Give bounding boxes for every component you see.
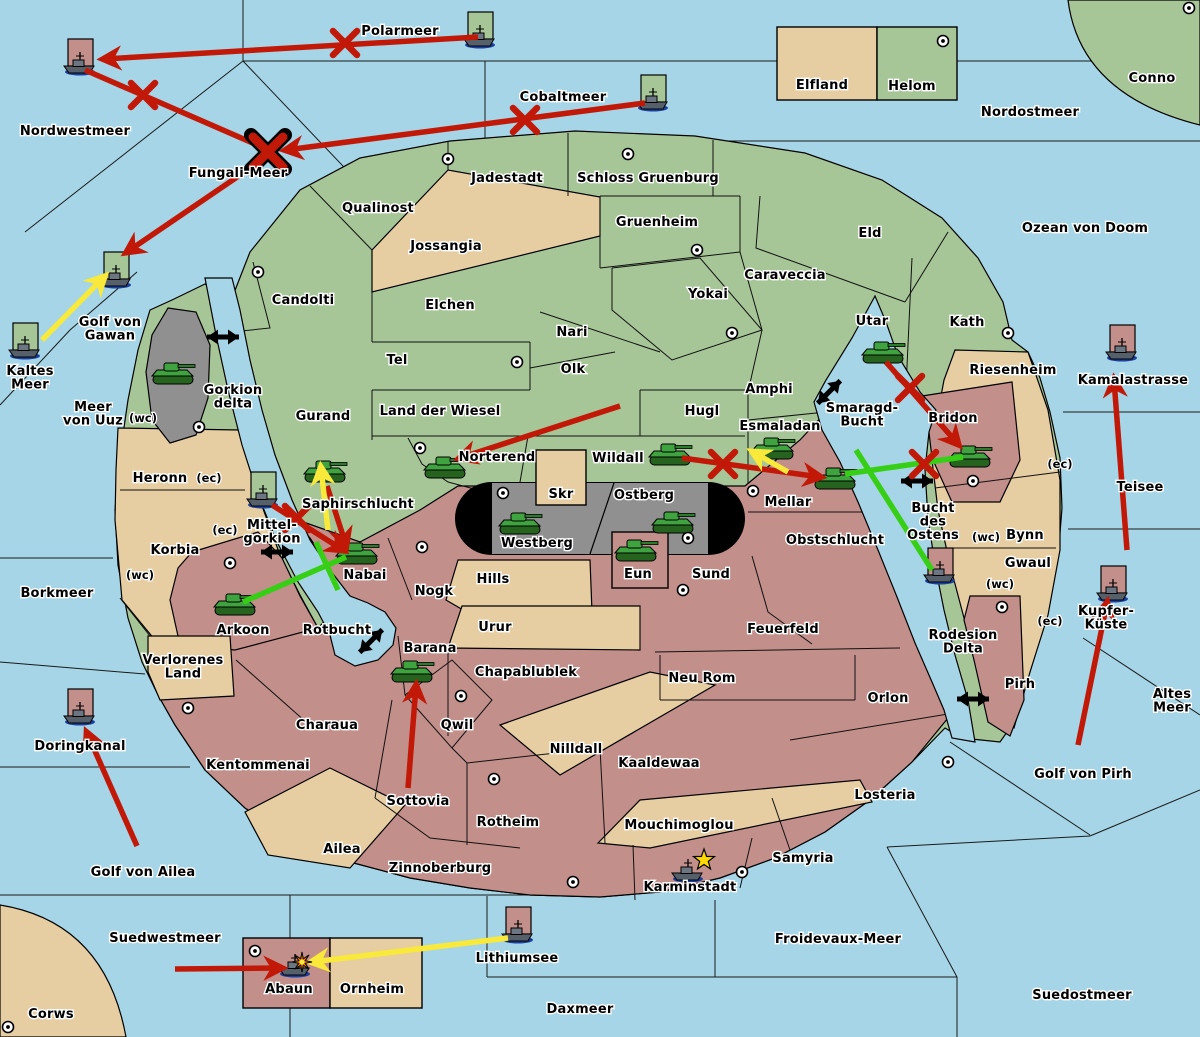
city-marker xyxy=(489,774,500,785)
sea-label-mittelgorkion: Mittel-gorkion xyxy=(243,518,300,547)
city-marker xyxy=(3,1022,14,1033)
ship-unit[interactable] xyxy=(464,12,495,49)
city-marker xyxy=(1184,3,1195,14)
territory-label-samyria: Samyria xyxy=(772,851,833,866)
sea-label-lithiumsee: Lithiumsee xyxy=(476,951,559,966)
territory-label-yokai: Yokai xyxy=(687,287,728,302)
sea-label-altes-meer: AltesMeer xyxy=(1153,687,1191,716)
territory-label-abaun: Abaun xyxy=(265,982,313,997)
territory-label-eun: Eun xyxy=(624,567,652,582)
territory-label-qwil: Qwil xyxy=(441,718,474,733)
territory-label-tel: Tel xyxy=(386,353,407,368)
territory-label-norterend: Norterend xyxy=(459,450,536,465)
territory-label-nogk: Nogk xyxy=(415,584,454,599)
territory-label-karminstadt: Karminstadt xyxy=(644,880,737,895)
territory-label-kentommenai: Kentommenai xyxy=(206,758,310,773)
city-marker xyxy=(415,443,426,454)
territory-label-losteria: Losteria xyxy=(854,788,915,803)
territory-label-westberg: Westberg xyxy=(501,536,573,551)
coast-marker: (wc) xyxy=(972,530,1000,544)
territory-label-gwaul: Gwaul xyxy=(1005,556,1051,571)
city-marker xyxy=(568,877,579,888)
territory-label-arkoon: Arkoon xyxy=(216,623,269,638)
territory-label-eld: Eld xyxy=(858,226,881,241)
sea-label-suedostmeer: Suedostmeer xyxy=(1032,988,1132,1003)
city-marker xyxy=(498,488,509,499)
sea-label-nordostmeer: Nordostmeer xyxy=(981,105,1080,120)
territory-label-nilldall: Nilldall xyxy=(550,742,603,757)
territory-label-kaaldewaa: Kaaldewaa xyxy=(618,756,700,771)
territory-label-elfland: Elfland xyxy=(796,78,848,93)
territory-label-land-der-wiesel: Land der Wiesel xyxy=(380,404,501,419)
territory-label-corws: Corws xyxy=(28,1007,74,1022)
sea-label-kaltes-meer: KaltesMeer xyxy=(6,364,53,393)
sea-label-golf-von-pirh: Golf von Pirh xyxy=(1034,767,1132,782)
territory-label-charaua: Charaua xyxy=(296,718,358,733)
territory-label-orlon: Orlon xyxy=(867,691,908,706)
sea-label-rotbucht: Rotbucht xyxy=(303,623,372,638)
territory-label-bridon: Bridon xyxy=(928,411,977,426)
sea-label-polarmeer: Polarmeer xyxy=(361,24,439,39)
territory-label-conno: Conno xyxy=(1129,71,1176,86)
city-marker xyxy=(748,486,759,497)
territory-label-kath: Kath xyxy=(949,315,984,330)
territory-label-riesenheim: Riesenheim xyxy=(969,363,1056,378)
territory-label-ornheim: Ornheim xyxy=(340,982,404,997)
region-urur[interactable] xyxy=(448,606,640,650)
ship-unit[interactable] xyxy=(9,323,40,360)
territory-label-zinnoberburg: Zinnoberburg xyxy=(389,861,492,876)
territory-label-utar: Utar xyxy=(856,314,889,329)
territory-label-jadestadt: Jadestadt xyxy=(470,171,543,186)
territory-label-caraveccia: Caraveccia xyxy=(744,268,825,283)
ship-unit[interactable] xyxy=(64,689,95,726)
territory-label-skr: Skr xyxy=(548,487,573,502)
territory-label-mellar: Mellar xyxy=(764,495,811,510)
city-marker xyxy=(727,328,738,339)
sea-label-teisee: Teisee xyxy=(1117,480,1164,495)
territory-label-korbia: Korbia xyxy=(151,543,200,558)
move-arrow-red-13 xyxy=(175,968,281,969)
territory-label-nabai: Nabai xyxy=(343,568,386,583)
territory-label-bynn: Bynn xyxy=(1006,528,1044,543)
territory-label-saphirschlucht: Saphirschlucht xyxy=(302,497,414,512)
ship-unit[interactable] xyxy=(100,252,131,289)
coast-marker: (ec) xyxy=(1047,457,1072,471)
territory-label-nari: Nari xyxy=(556,325,587,340)
sea-label-golf-von-ailea: Golf von Ailea xyxy=(91,865,196,880)
territory-label-rotheim: Rotheim xyxy=(477,815,540,830)
territory-label-barana: Barana xyxy=(403,641,456,656)
territory-label-elchen: Elchen xyxy=(425,298,475,313)
city-marker xyxy=(225,558,236,569)
city-marker xyxy=(194,422,205,433)
territory-label-ailea: Ailea xyxy=(323,842,361,857)
sea-label-nordwestmeer: Nordwestmeer xyxy=(20,124,131,139)
sea-label-froidevaux-meer: Froidevaux-Meer xyxy=(775,932,902,947)
territory-label-esmaladan: Esmaladan xyxy=(739,419,820,434)
game-map[interactable]: NordwestmeerPolarmeerCobaltmeerFungali-M… xyxy=(0,0,1200,1037)
coast-marker: (wc) xyxy=(129,411,157,425)
territory-label-gurand: Gurand xyxy=(296,409,351,424)
city-marker xyxy=(678,585,689,596)
city-marker xyxy=(250,946,261,957)
coast-marker: (ec) xyxy=(212,523,237,537)
territory-label-urur: Urur xyxy=(478,620,512,635)
sea-label-kamalastrasse: Kamalastrasse xyxy=(1078,373,1188,388)
sea-label-doringkanal: Doringkanal xyxy=(34,739,125,754)
city-marker xyxy=(456,691,467,702)
sea-label-kupfer-kueste: Kupfer-Küste xyxy=(1078,604,1134,633)
city-marker xyxy=(183,703,194,714)
ship-unit[interactable] xyxy=(1097,566,1128,603)
territory-label-neu-rom: Neu Rom xyxy=(668,671,735,686)
explosion-core xyxy=(300,960,305,965)
territory-label-amphi: Amphi xyxy=(745,382,793,397)
sea-label-golf-von-gawan: Golf vonGawan xyxy=(79,315,142,344)
territory-label-jossangia: Jossangia xyxy=(409,239,482,254)
territory-label-feuerfeld: Feuerfeld xyxy=(747,622,819,637)
territory-label-sund: Sund xyxy=(692,567,730,582)
city-marker xyxy=(737,867,748,878)
territory-label-hills: Hills xyxy=(477,572,510,587)
city-marker xyxy=(623,149,634,160)
sea-label-fungali-meer: Fungali-Meer xyxy=(189,166,288,181)
city-marker xyxy=(692,245,703,256)
ship-unit[interactable] xyxy=(1106,325,1137,362)
territory-label-olk: Olk xyxy=(561,362,586,377)
territory-label-gruenheim: Gruenheim xyxy=(616,215,698,230)
city-marker xyxy=(417,542,428,553)
sea-label-daxmeer: Daxmeer xyxy=(547,1002,614,1017)
game-map-canvas[interactable]: NordwestmeerPolarmeerCobaltmeerFungali-M… xyxy=(0,0,1200,1037)
territory-label-qualinost: Qualinost xyxy=(342,201,414,216)
city-marker xyxy=(253,267,264,278)
sea-label-borkmeer: Borkmeer xyxy=(20,586,93,601)
territory-label-ostberg: Ostberg xyxy=(614,488,674,503)
territory-label-helom: Helom xyxy=(888,79,936,94)
coast-marker: (ec) xyxy=(196,471,221,485)
territory-label-hugl: Hugl xyxy=(685,404,720,419)
city-marker xyxy=(968,476,979,487)
territory-label-candolti: Candolti xyxy=(272,293,335,308)
coast-marker: (wc) xyxy=(126,568,154,582)
territory-label-mouchimoglou: Mouchimoglou xyxy=(624,818,733,833)
territory-label-wildall: Wildall xyxy=(592,451,644,466)
sea-label-cobaltmeer: Cobaltmeer xyxy=(520,90,607,105)
territory-label-obstschlucht: Obstschlucht xyxy=(786,533,884,548)
sea-label-suedwestmeer: Suedwestmeer xyxy=(109,931,221,946)
city-marker xyxy=(1003,328,1014,339)
city-marker xyxy=(512,357,523,368)
coast-marker: (wc) xyxy=(986,577,1014,591)
city-marker xyxy=(443,154,454,165)
territory-label-schloss-gruenburg: Schloss Gruenburg xyxy=(577,171,719,186)
city-marker xyxy=(997,602,1008,613)
city-marker xyxy=(943,757,954,768)
sea-label-ozean-von-doom: Ozean von Doom xyxy=(1022,221,1148,236)
territory-label-heronn: Heronn xyxy=(133,471,188,486)
territory-label-pirh: Pirh xyxy=(1005,677,1035,692)
territory-label-sottovia: Sottovia xyxy=(387,794,450,809)
city-marker xyxy=(938,36,949,47)
coast-marker: (ec) xyxy=(1037,614,1062,628)
city-marker xyxy=(683,533,694,544)
territory-label-chapablublek: Chapablublek xyxy=(475,665,577,680)
